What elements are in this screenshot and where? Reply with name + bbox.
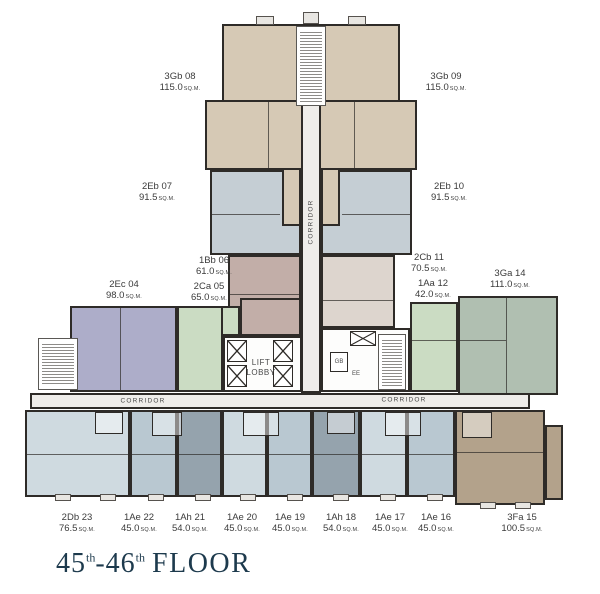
unit-area-value: 45.0 [272, 523, 291, 534]
balcony-tick [333, 494, 349, 501]
unit-area-unit: SQ.M. [437, 527, 454, 533]
unit-label-1Aa-12: 1Aa 1242.0SQ.M. [415, 279, 451, 301]
unit-area-unit: SQ.M. [434, 293, 451, 299]
balcony-tick [287, 494, 303, 501]
unit-area-unit: SQ.M. [526, 527, 543, 533]
corridor [30, 393, 530, 409]
lift-shaft-icon [227, 365, 247, 387]
unit-area: 42.0SQ.M. [415, 290, 451, 301]
unit-area-unit: SQ.M. [430, 267, 447, 273]
balcony-tick [348, 16, 366, 25]
unit-area-unit: SQ.M. [78, 527, 95, 533]
lift-lobby-line2: LOBBY [246, 368, 275, 378]
unit-label-1Ae-16: 1Ae 1645.0SQ.M. [418, 513, 454, 535]
unit-label-1Bb-06: 1Bb 0661.0SQ.M. [196, 256, 232, 278]
unit-area-unit: SQ.M. [513, 283, 530, 289]
staircase-icon [38, 338, 78, 390]
interior-wall [314, 454, 358, 455]
unit-area: 65.0SQ.M. [191, 293, 227, 304]
unit-area: 98.0SQ.M. [106, 291, 142, 302]
unit-area-value: 65.0 [191, 292, 210, 303]
balcony-tick [303, 12, 319, 24]
unit-area: 45.0SQ.M. [224, 524, 260, 535]
unit-area-value: 91.5 [431, 192, 450, 203]
unit-label-1Ah-18: 1Ah 1854.0SQ.M. [323, 513, 359, 535]
corridor-label-vertical: CORRIDOR [308, 200, 315, 245]
stair-treads [42, 342, 74, 386]
interior-wall [132, 454, 175, 455]
unit-area-unit: SQ.M. [215, 270, 232, 276]
unit-area-unit: SQ.M. [450, 86, 467, 92]
unit-area-value: 115.0 [160, 82, 183, 93]
unit-area: 115.0SQ.M. [426, 83, 467, 94]
unit-area-unit: SQ.M. [342, 527, 359, 533]
unit-label-2Ec-04: 2Ec 0498.0SQ.M. [106, 280, 142, 302]
unit-label-1Ae-20: 1Ae 2045.0SQ.M. [224, 513, 260, 535]
gb-shaft-label: GB [330, 352, 348, 372]
lift-lobby-line1: LIFT [246, 358, 275, 368]
bathroom-block [385, 412, 421, 436]
interior-wall [354, 102, 355, 168]
bathroom-block [327, 412, 355, 434]
unit-label-3Gb-09: 3Gb 09115.0SQ.M. [426, 72, 467, 94]
lift-shaft-icon [273, 340, 293, 362]
interior-wall [342, 214, 410, 215]
corridor [301, 104, 321, 393]
stair-treads [382, 338, 402, 386]
lift-lobby-label: LIFT LOBBY [246, 358, 275, 378]
unit-label-1Ae-17: 1Ae 1745.0SQ.M. [372, 513, 408, 535]
balcony-tick [256, 16, 274, 25]
room-block [282, 168, 301, 226]
lift-shaft-icon [227, 340, 247, 362]
unit-area-value: 54.0 [172, 523, 191, 534]
unit-label-1Ae-22: 1Ae 2245.0SQ.M. [121, 513, 157, 535]
interior-wall [460, 340, 506, 341]
unit-area-unit: SQ.M. [291, 527, 308, 533]
unit-area-value: 54.0 [323, 523, 342, 534]
unit-area: 76.5SQ.M. [59, 524, 95, 535]
unit-area-value: 76.5 [59, 523, 78, 534]
balcony-tick [380, 494, 396, 501]
balcony-tick [515, 502, 531, 509]
corridor-label-left: CORRIDOR [121, 398, 166, 405]
unit-area-unit: SQ.M. [243, 527, 260, 533]
bathroom-block [243, 412, 279, 436]
unit-area: 45.0SQ.M. [418, 524, 454, 535]
floor-title-num-a: 45 [56, 548, 86, 579]
unit-area: 100.5SQ.M. [501, 524, 542, 535]
balcony-tick [148, 494, 164, 501]
interior-wall [323, 300, 393, 301]
unit-area-unit: SQ.M. [125, 294, 142, 300]
lift-shaft-icon [350, 331, 376, 346]
unit-area-value: 45.0 [418, 523, 437, 534]
floor-title-dash: - [95, 548, 105, 579]
lift-shaft-icon [273, 365, 293, 387]
interior-wall [506, 298, 507, 393]
stair-treads [300, 30, 322, 102]
unit-area-unit: SQ.M. [140, 527, 157, 533]
bathroom-block [152, 412, 182, 436]
room-block [177, 306, 223, 392]
balcony-tick [55, 494, 71, 501]
interior-wall [120, 308, 121, 390]
interior-wall [212, 214, 280, 215]
balcony-tick [100, 494, 116, 501]
interior-wall [409, 454, 453, 455]
unit-area-value: 98.0 [106, 290, 125, 301]
interior-wall [268, 102, 269, 168]
unit-area-value: 61.0 [196, 266, 215, 277]
floor-plan-canvas: 3Gb 08115.0SQ.M.3Gb 09115.0SQ.M.2Eb 0791… [0, 0, 600, 594]
staircase-icon [296, 26, 326, 106]
unit-label-2Db-23: 2Db 2376.5SQ.M. [59, 513, 95, 535]
unit-area-value: 111.0 [490, 279, 512, 290]
unit-area-unit: SQ.M. [210, 296, 227, 302]
unit-label-3Gb-08: 3Gb 08115.0SQ.M. [160, 72, 201, 94]
floor-title-sup-a: th [86, 551, 95, 565]
interior-wall [230, 294, 299, 295]
unit-label-2Cb-11: 2Cb 1170.5SQ.M. [411, 253, 447, 275]
interior-wall [412, 340, 456, 341]
unit-area: 54.0SQ.M. [172, 524, 208, 535]
unit-room-1Aa-12 [410, 302, 458, 392]
unit-room-2Cb-11 [321, 255, 395, 328]
unit-area-unit: SQ.M. [450, 196, 467, 202]
bathroom-block [95, 412, 123, 434]
unit-area: 70.5SQ.M. [411, 264, 447, 275]
unit-label-3Ga-14: 3Ga 14111.0SQ.M. [490, 269, 530, 291]
unit-label-1Ae-19: 1Ae 1945.0SQ.M. [272, 513, 308, 535]
staircase-icon [378, 334, 406, 390]
floor-title-num-b: 46 [106, 548, 136, 579]
interior-wall [269, 454, 310, 455]
unit-area: 115.0SQ.M. [160, 83, 201, 94]
interior-wall [179, 454, 220, 455]
unit-area-value: 70.5 [411, 263, 430, 274]
unit-label-2Eb-07: 2Eb 0791.5SQ.M. [139, 182, 175, 204]
corridor-label-right: CORRIDOR [382, 397, 427, 404]
unit-area-unit: SQ.M. [391, 527, 408, 533]
interior-wall [224, 454, 265, 455]
unit-area: 91.5SQ.M. [139, 193, 175, 204]
unit-area: 91.5SQ.M. [431, 193, 467, 204]
unit-area: 45.0SQ.M. [121, 524, 157, 535]
unit-area-value: 45.0 [121, 523, 140, 534]
unit-area-value: 45.0 [372, 523, 391, 534]
interior-wall [27, 454, 128, 455]
room-block [545, 425, 563, 500]
ee-shaft-label: EE [352, 371, 360, 377]
unit-room-2Ec-04 [70, 306, 177, 392]
floor-title-sup-b: th [136, 551, 145, 565]
unit-area-value: 100.5 [501, 523, 525, 534]
unit-area-value: 42.0 [415, 289, 434, 300]
room-block [321, 168, 340, 226]
balcony-tick [427, 494, 443, 501]
floor-title: 45th-46thFLOOR [56, 548, 251, 580]
interior-wall [362, 454, 405, 455]
balcony-tick [195, 494, 211, 501]
unit-label-3Fa-15: 3Fa 15100.5SQ.M. [501, 513, 542, 535]
room-block [240, 298, 301, 336]
unit-area-value: 91.5 [139, 192, 158, 203]
unit-area: 45.0SQ.M. [372, 524, 408, 535]
unit-area-unit: SQ.M. [191, 527, 208, 533]
unit-label-2Ca-05: 2Ca 0565.0SQ.M. [191, 282, 227, 304]
unit-area-unit: SQ.M. [158, 196, 175, 202]
unit-area: 54.0SQ.M. [323, 524, 359, 535]
floor-title-word: FLOOR [152, 548, 251, 579]
bathroom-block [462, 412, 492, 438]
unit-area-unit: SQ.M. [184, 86, 201, 92]
interior-wall [457, 452, 543, 453]
unit-area-value: 115.0 [426, 82, 449, 93]
balcony-tick [480, 502, 496, 509]
unit-area: 111.0SQ.M. [490, 280, 530, 291]
unit-area: 45.0SQ.M. [272, 524, 308, 535]
balcony-tick [240, 494, 256, 501]
unit-area: 61.0SQ.M. [196, 267, 232, 278]
unit-room-3Ga-14 [458, 296, 558, 395]
floor-plan: 3Gb 08115.0SQ.M.3Gb 09115.0SQ.M.2Eb 0791… [0, 0, 600, 594]
unit-label-1Ah-21: 1Ah 2154.0SQ.M. [172, 513, 208, 535]
unit-area-value: 45.0 [224, 523, 243, 534]
unit-label-2Eb-10: 2Eb 1091.5SQ.M. [431, 182, 467, 204]
